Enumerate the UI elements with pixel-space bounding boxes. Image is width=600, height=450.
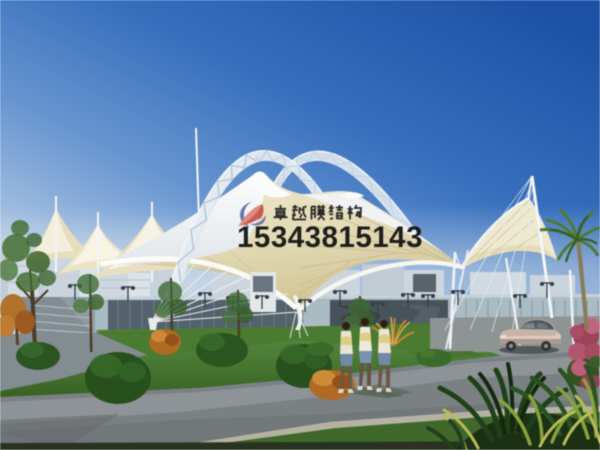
svg-text:15343815143: 15343815143 [237,221,423,254]
